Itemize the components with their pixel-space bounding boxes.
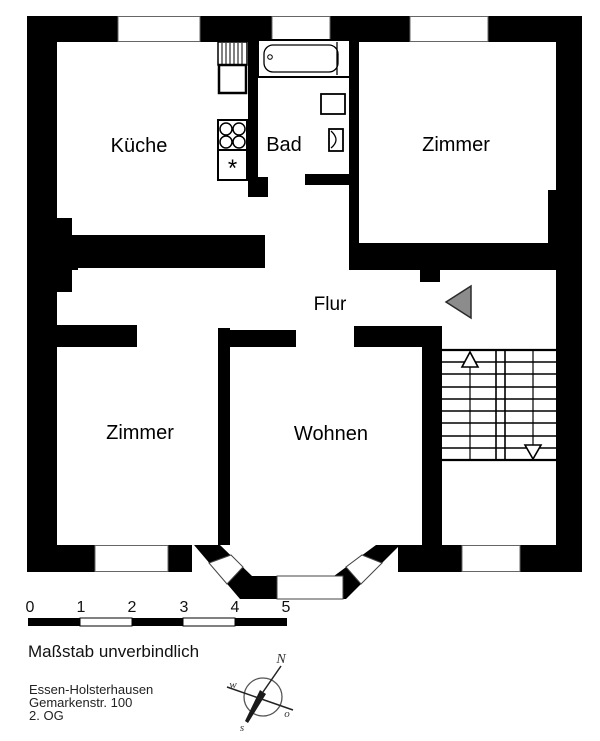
compass-label-north: N <box>275 652 286 667</box>
entrance-arrow-icon <box>446 286 471 318</box>
window-bay-center <box>277 576 343 599</box>
floorplan-canvas: * Küche Bad <box>0 0 600 741</box>
wall-zimmer-wohnen <box>218 328 230 545</box>
stairs-up-arrow-icon <box>462 352 478 367</box>
address-block: Essen-Holsterhausen Gemarkenstr. 100 2. … <box>29 682 153 723</box>
fridge-symbol: * <box>228 155 237 182</box>
scale-tick-4: 4 <box>231 599 240 616</box>
floorplan-page: * Küche Bad <box>0 0 600 741</box>
fridge-icon: * <box>218 150 247 182</box>
address-line-3: 2. OG <box>29 708 64 723</box>
washbasin-icon <box>321 94 345 114</box>
compass-label-west: w <box>229 679 237 691</box>
window-top-kueche <box>118 17 200 42</box>
kitchen-sink-unit <box>218 42 247 93</box>
scale-tick-5: 5 <box>282 599 291 616</box>
staircase <box>442 350 557 460</box>
wall-right <box>556 16 582 572</box>
wall-stairwell-left <box>422 326 442 545</box>
scale-tick-3: 3 <box>180 599 189 616</box>
wall-kueche-bottom <box>57 235 265 268</box>
wall-left-pier-stub <box>72 244 78 270</box>
scale-tick-1: 1 <box>77 599 86 616</box>
sink-basin <box>219 65 246 93</box>
walls <box>27 16 582 599</box>
scale-tick-0: 0 <box>26 599 35 616</box>
toilet-icon <box>329 129 343 151</box>
stove-icon <box>218 120 247 150</box>
window-top-bad <box>272 17 330 42</box>
room-label-wohnen: Wohnen <box>294 423 368 445</box>
room-label-kueche: Küche <box>111 135 168 157</box>
wall-left <box>27 16 57 572</box>
scale-tick-2: 2 <box>128 599 137 616</box>
window-top-zimmer <box>410 17 488 42</box>
kitchen-fixtures: * <box>218 42 247 182</box>
scale-note: Maßstab unverbindlich <box>28 642 199 661</box>
stairs-down-arrow-icon <box>525 445 541 459</box>
room-label-zimmer-top: Zimmer <box>422 134 490 156</box>
wall-stub-bad-door <box>248 177 268 197</box>
wall-wohnen-top-left <box>230 330 296 347</box>
wall-kueche-bad <box>248 42 258 197</box>
room-label-bad: Bad <box>266 134 302 156</box>
wall-flur-top-right <box>352 243 582 270</box>
stair-treads <box>442 362 557 448</box>
bathtub-icon <box>258 40 350 77</box>
window-bottom-stairs <box>462 546 520 572</box>
compass-needle-north <box>263 666 281 692</box>
wall-right-pier <box>548 190 557 243</box>
compass-label-south: s <box>240 722 244 734</box>
compass-label-east: o <box>284 708 290 720</box>
scale-bar: 0 1 2 3 4 5 <box>26 599 291 626</box>
wall-zimmer-bl-top <box>57 325 137 347</box>
room-label-zimmer-bottom: Zimmer <box>106 422 174 444</box>
room-label-flur: Flur <box>314 294 347 315</box>
compass-rose-icon: N w o s <box>227 652 293 734</box>
window-bottom-zimmer <box>95 546 168 572</box>
wall-left-pier <box>57 218 72 292</box>
wall-door-jamb <box>420 270 440 282</box>
